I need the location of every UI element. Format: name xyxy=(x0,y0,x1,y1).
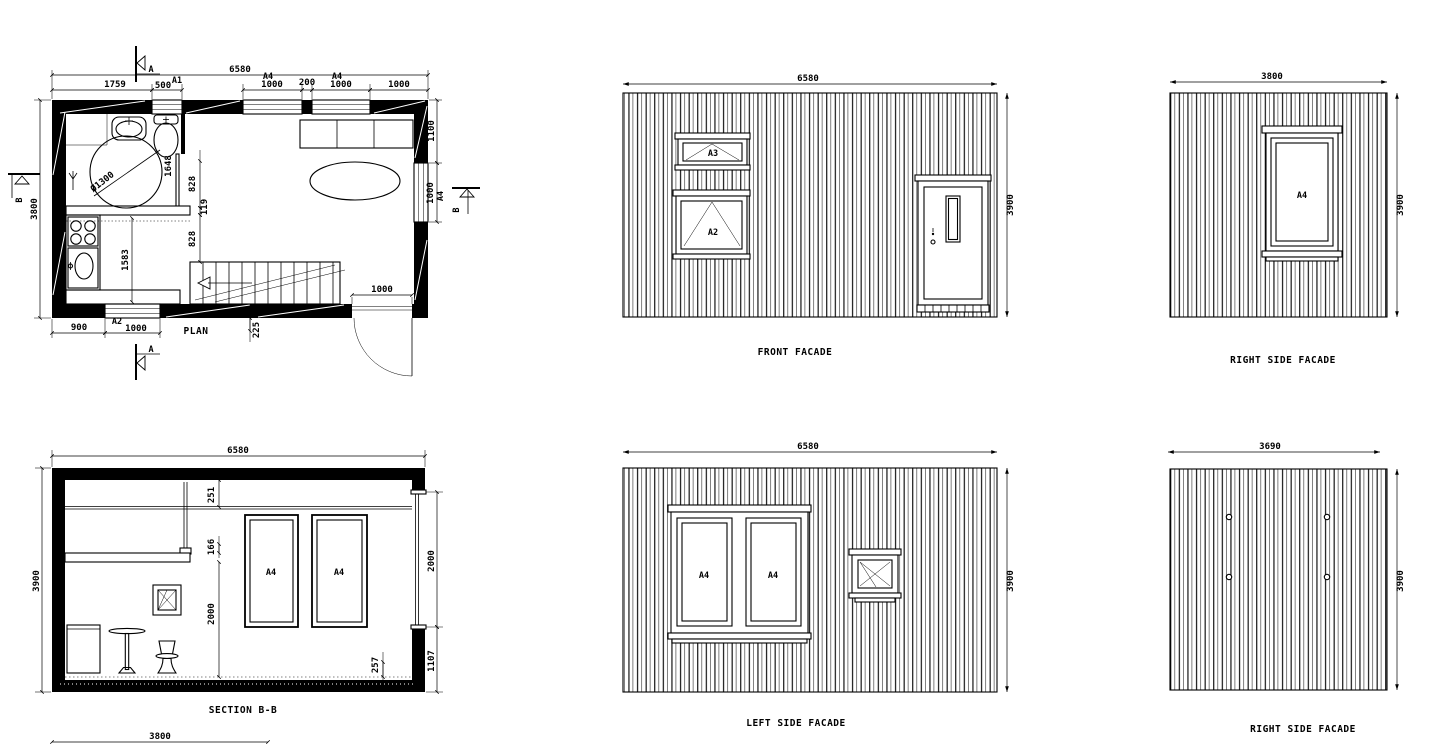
window-tag: A2 xyxy=(112,317,122,327)
left-facade-view: A4 A4 6580 3900 LEFT SIDE FACADE xyxy=(623,442,1016,729)
dim-text: 1000 xyxy=(388,80,410,90)
window-tag: A4 xyxy=(699,571,709,581)
window-tag: A4 xyxy=(768,571,778,581)
dim-text: 1759 xyxy=(104,80,126,90)
dim-text: 1000 xyxy=(261,80,283,90)
drawing-canvas: A A B B xyxy=(0,0,1455,753)
section-marker-a-top: A xyxy=(136,46,160,82)
marker-letter: A xyxy=(148,345,153,355)
dim-text: 3690 xyxy=(1259,442,1281,452)
dim-text: 3900 xyxy=(32,570,42,592)
dim-text: 6580 xyxy=(227,446,249,456)
section-cabinet xyxy=(67,625,100,673)
dim-text: 6580 xyxy=(229,65,251,75)
window-tag: A4 xyxy=(266,568,276,578)
dim-text: 3900 xyxy=(1396,194,1406,216)
section-marker-b-right: B xyxy=(452,188,480,214)
section-toilet-icon xyxy=(156,641,178,673)
window-tag: A2 xyxy=(708,228,718,238)
plan-entry-door xyxy=(352,304,412,376)
dim-text: 1000 xyxy=(330,80,352,90)
facade-entry-door xyxy=(915,175,991,312)
dim-text: 3800 xyxy=(1261,72,1283,82)
facade-double-window: A4 A4 xyxy=(668,505,811,643)
section-table-icon xyxy=(109,628,145,673)
view-title: LEFT SIDE FACADE xyxy=(746,718,846,729)
dim-text: 2000 xyxy=(427,550,437,572)
section-bath-window xyxy=(153,585,181,615)
door-threshold xyxy=(917,305,989,312)
plan-window-a4-left xyxy=(243,100,302,114)
facade-small-window xyxy=(849,549,901,602)
dim-text: 2000 xyxy=(207,603,217,625)
dim-text: 3900 xyxy=(1006,570,1016,592)
marker-letter: B xyxy=(452,207,462,212)
plan-window-a4-right xyxy=(312,100,370,114)
plan-stairs xyxy=(190,262,345,304)
window-tag: A4 xyxy=(1297,191,1307,201)
dim-text: 1583 xyxy=(121,249,131,271)
facade-siding xyxy=(1170,469,1387,690)
dim-text: 1107 xyxy=(427,650,437,672)
dim-text: 1000 xyxy=(125,324,147,334)
section-walls xyxy=(52,468,425,692)
marker-letter: A xyxy=(148,65,153,75)
dim-text: 3800 xyxy=(149,732,171,742)
dim-text: 1100 xyxy=(427,120,437,142)
plan-table-oval xyxy=(310,162,400,200)
plan-window-a1 xyxy=(152,100,182,114)
plan-wardrobe xyxy=(300,120,413,148)
dim-text: 1000 xyxy=(426,182,436,204)
section-window-a4-left: A4 xyxy=(245,515,298,627)
dim-text: 251 xyxy=(207,487,217,503)
dim-text: 1648 xyxy=(164,155,174,177)
view-title: FRONT FACADE xyxy=(758,347,833,358)
cad-drawing-sheet: A A B B xyxy=(0,0,1455,753)
dim-text: 225 xyxy=(252,322,262,338)
view-title: RIGHT SIDE FACADE xyxy=(1250,724,1356,735)
view-title: PLAN xyxy=(184,326,209,337)
dim-text: 900 xyxy=(71,323,87,333)
dim-text: 6580 xyxy=(797,442,819,452)
dim-text: 257 xyxy=(371,657,381,673)
section-right-window xyxy=(411,490,426,629)
dim-text: 1000 xyxy=(371,285,393,295)
dim-text: 3800 xyxy=(30,198,40,220)
facade-window-a3: A3 xyxy=(675,133,750,170)
dim-text: 500 xyxy=(155,81,171,91)
view-title: SECTION B-B xyxy=(209,705,277,716)
stove-icon xyxy=(68,217,98,246)
sliding-door xyxy=(176,154,179,210)
dim-text: 3900 xyxy=(1006,194,1016,216)
dim-text: 6580 xyxy=(797,74,819,84)
section-loft xyxy=(65,482,191,562)
right-facade-lower-view: 3690 3900 RIGHT SIDE FACADE xyxy=(1168,442,1406,735)
window-tag: A4 xyxy=(436,191,446,201)
section-marker-a-bottom: A xyxy=(136,344,160,380)
plan-window-a2 xyxy=(105,304,160,318)
dim-text: 166 xyxy=(207,539,217,555)
window-tag: A3 xyxy=(708,149,718,159)
shower-head-icon xyxy=(69,171,77,190)
shower-circle xyxy=(90,136,162,208)
section-window-a4-right: A4 xyxy=(312,515,367,627)
marker-letter: B xyxy=(15,197,25,202)
dim-text: 200 xyxy=(299,78,315,88)
dim-text: 3900 xyxy=(1396,570,1406,592)
kitchen-sink-icon xyxy=(68,248,98,288)
toilet-icon xyxy=(154,115,178,157)
front-facade-view: A3 A2 xyxy=(623,74,1016,358)
right-facade-upper-view: A4 3800 3900 RIGHT SIDE FACADE xyxy=(1170,72,1406,366)
dim-text: 119 xyxy=(200,199,210,215)
view-title: RIGHT SIDE FACADE xyxy=(1230,355,1336,366)
facade-window-a2: A2 xyxy=(673,190,750,259)
window-tag: A1 xyxy=(172,76,182,86)
section-dimensions: 6580 3900 2000 1107 251 166 2000 257 380… xyxy=(32,446,443,742)
section-view: A4 A4 xyxy=(32,446,443,742)
dim-text: 828 xyxy=(188,176,198,192)
window-tag: A4 xyxy=(334,568,344,578)
facade-window-a4: A4 xyxy=(1262,126,1342,261)
plan-view: A A B B xyxy=(8,46,480,380)
door-handle-icon xyxy=(932,233,934,235)
dim-text: 828 xyxy=(188,231,198,247)
